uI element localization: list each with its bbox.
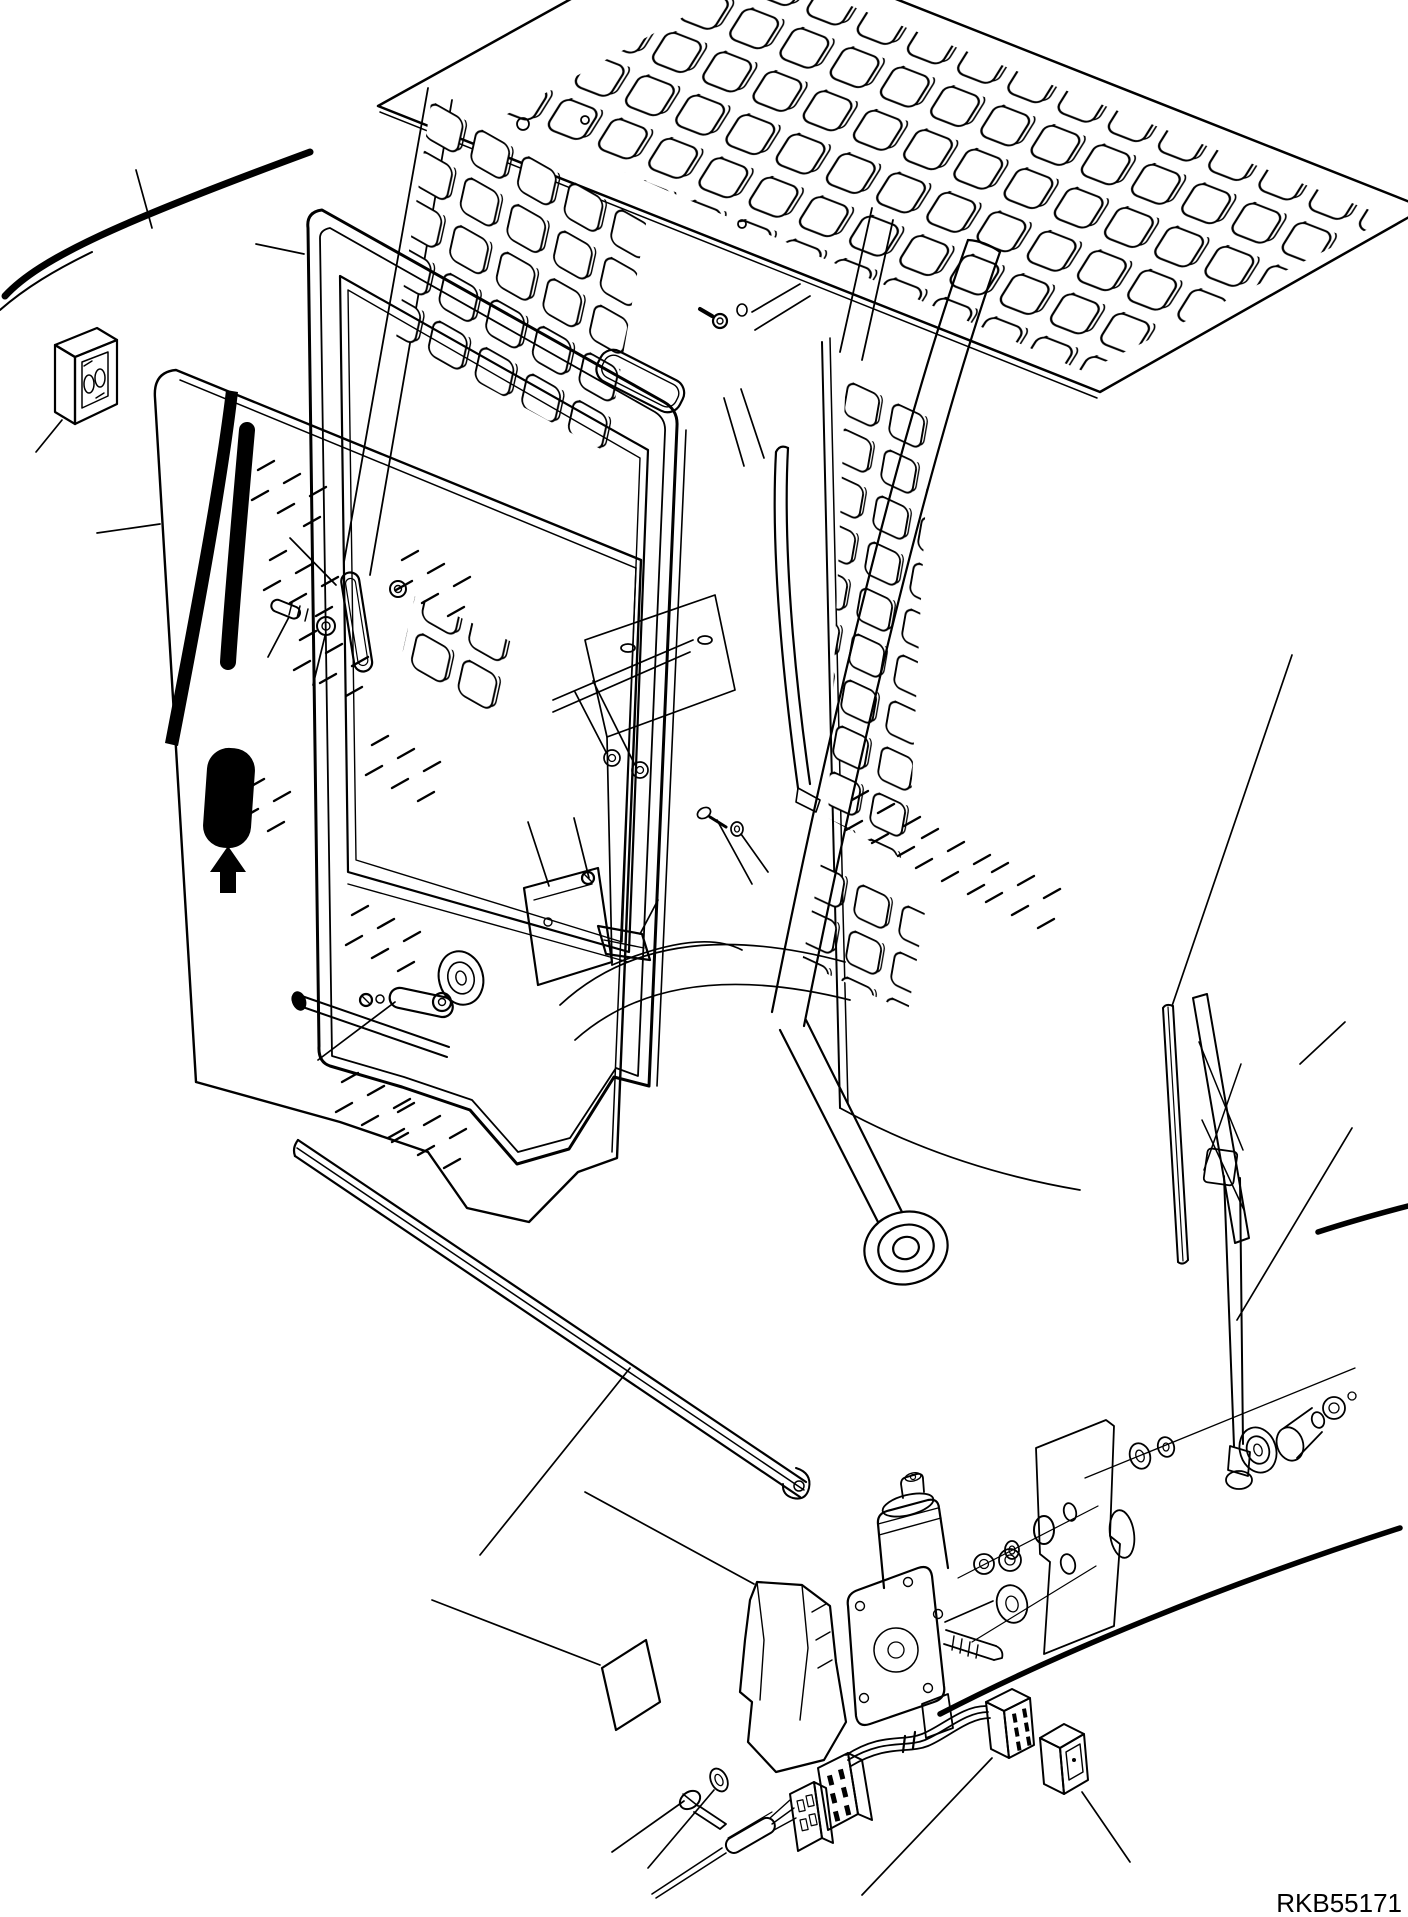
window-latch-lever [360,986,455,1019]
screw-and-nut-fasteners [270,581,406,635]
cable-sleeve [652,1800,796,1898]
rocker-switch [1040,1724,1088,1794]
lower-trim-rail [294,1140,809,1499]
drawing-code: RKB55171 [1276,1888,1402,1917]
diagram-page: RKB55171 [0,0,1408,1917]
glass-run-strip [289,989,449,1057]
identification-plate [602,1640,660,1730]
grab-rail [775,447,820,812]
door-striker-block [55,328,117,424]
exploded-diagram: RKB55171 [0,0,1408,1917]
cab-left-edge [0,152,310,310]
wiring-harness [846,1706,990,1766]
cab-interior-structure [553,595,850,1040]
harness-connector [986,1689,1034,1758]
cab-bottom-edge [940,1206,1408,1714]
grommet [707,1766,732,1795]
wire-connectors [790,1753,872,1851]
cutaway-mounting-panel [958,1420,1137,1654]
pillar-roller [856,1202,956,1293]
mounting-screw [676,1787,726,1829]
wiper-rubber [1163,1005,1188,1264]
wiper-pivot-hardware [1085,1368,1356,1478]
leader-lines [36,170,1352,1895]
cab-right-side [802,338,1080,1190]
washers-nuts-orings [958,1506,1098,1642]
wiper-motor-cover [740,1582,846,1772]
